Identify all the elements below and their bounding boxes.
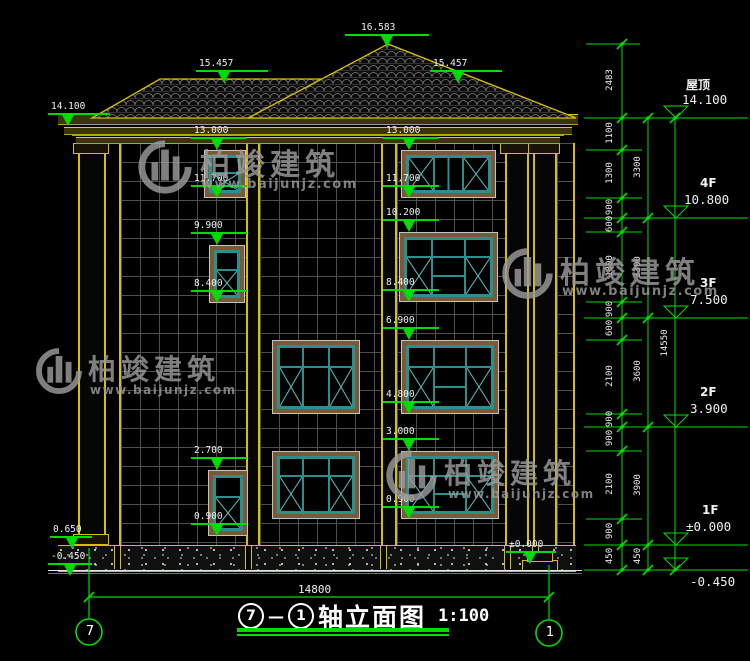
watermark-brand: 柏竣建筑	[444, 452, 576, 492]
watermark-site: www.baijunjz.com	[448, 487, 595, 501]
dim-text: 1100	[605, 111, 615, 155]
watermark-logo-icon	[500, 246, 555, 301]
elevation-marker: 8.400	[191, 278, 247, 303]
dim-text: 450	[605, 534, 615, 578]
level-value-roof: 14.100	[682, 92, 727, 107]
dim-text: 3300	[633, 145, 643, 189]
axis-bubble-1: 1	[541, 625, 559, 640]
level-label-4f: 4F	[700, 176, 717, 190]
level-label-roof: 屋顶	[686, 76, 710, 93]
dim-text: 2100	[605, 462, 615, 506]
level-label-2f: 2F	[700, 385, 717, 399]
level-value-2f: 3.900	[690, 401, 728, 416]
dim-text-overall: 14550	[660, 321, 670, 365]
elevation-marker: 8.400	[383, 277, 439, 302]
dim-text: 900	[605, 416, 615, 460]
dim-text: 3900	[633, 463, 643, 507]
watermark-site: www.baijunjz.com	[562, 284, 719, 299]
dim-text: 2483	[605, 58, 615, 102]
watermark-brand: 柏竣建筑	[88, 348, 220, 388]
elevation-marker-peak: 16.583	[345, 22, 429, 47]
dim-text: 600	[605, 202, 615, 246]
axis-bubble-7: 7	[81, 624, 99, 639]
level-value-ground: -0.450	[690, 574, 735, 589]
elevation-marker: 2.700	[191, 445, 247, 470]
elevation-marker: 11.700	[383, 173, 439, 198]
level-value-1f: ±0.000	[686, 519, 731, 534]
elevation-marker-ridge-left: 15.457	[196, 58, 268, 83]
elevation-marker: 10.200	[383, 207, 439, 232]
level-label-1f: 1F	[702, 503, 719, 517]
elevation-marker-eave: 14.100	[48, 101, 110, 126]
elevation-marker: 0.900	[191, 511, 247, 536]
level-value-4f: 10.800	[684, 192, 729, 207]
elevation-marker: 9.900	[191, 220, 247, 245]
dim-text: 3600	[633, 349, 643, 393]
title-underline-thick	[237, 628, 449, 632]
title-underline-thin	[237, 634, 449, 636]
elevation-drawing-canvas: 16.583 15.457 15.457 14.100 13.000 11.70…	[0, 0, 750, 661]
elevation-marker: 13.000	[383, 125, 439, 150]
elevation-marker-entry: ±0.000	[506, 539, 556, 564]
title-axis-from: 7	[238, 603, 264, 629]
watermark-site: www.baijunjz.com	[201, 177, 358, 192]
title-dash: —	[268, 607, 284, 626]
watermark-logo-icon	[34, 346, 84, 396]
title-scale: 1:100	[438, 606, 489, 626]
title-axis-to: 1	[288, 603, 314, 629]
elevation-marker-plinth: 0.650	[50, 524, 92, 549]
watermark-logo-icon	[384, 448, 439, 503]
width-dim-text: 14800	[298, 583, 331, 596]
watermark-logo-icon	[136, 136, 194, 198]
dim-text: 450	[633, 534, 643, 578]
watermark-site: www.baijunjz.com	[90, 383, 237, 397]
elevation-marker-ridge-right: 15.457	[430, 58, 502, 83]
elevation-marker: 6.900	[383, 315, 439, 340]
dim-text: 2100	[605, 354, 615, 398]
elevation-marker-ground-left: -0.450	[48, 551, 92, 576]
elevation-marker: 4.800	[383, 389, 439, 414]
dim-text: 600	[605, 306, 615, 350]
